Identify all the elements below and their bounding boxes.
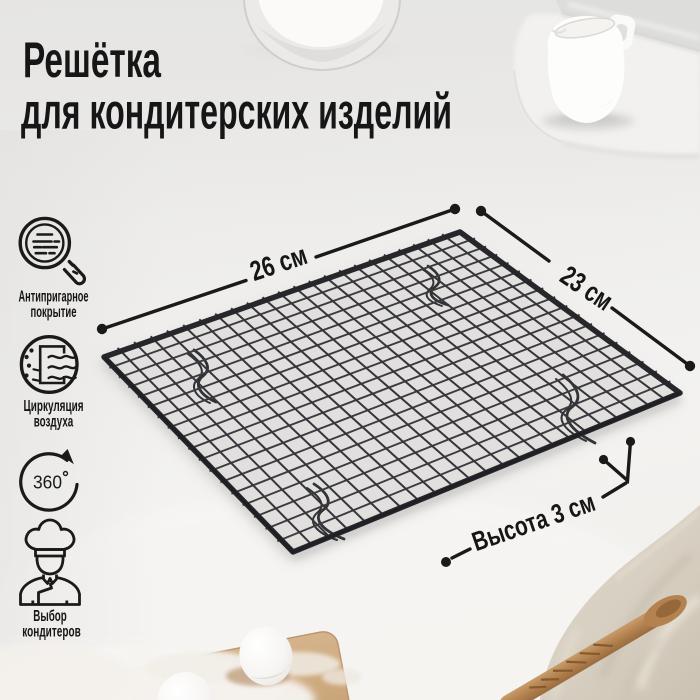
svg-text:360: 360 <box>33 472 62 493</box>
svg-text:покрытие: покрытие <box>31 304 77 321</box>
svg-text:для кондитерских изделий: для кондитерских изделий <box>21 84 452 140</box>
svg-text:Циркуляция: Циркуляция <box>24 398 84 415</box>
svg-text:кондитеров: кондитеров <box>22 624 81 641</box>
svg-text:воздуха: воздуха <box>34 414 74 431</box>
svg-text:Выбор: Выбор <box>33 608 67 625</box>
svg-text:Антипригарное: Антипригарное <box>19 289 89 306</box>
svg-text:Решётка: Решётка <box>23 32 162 88</box>
